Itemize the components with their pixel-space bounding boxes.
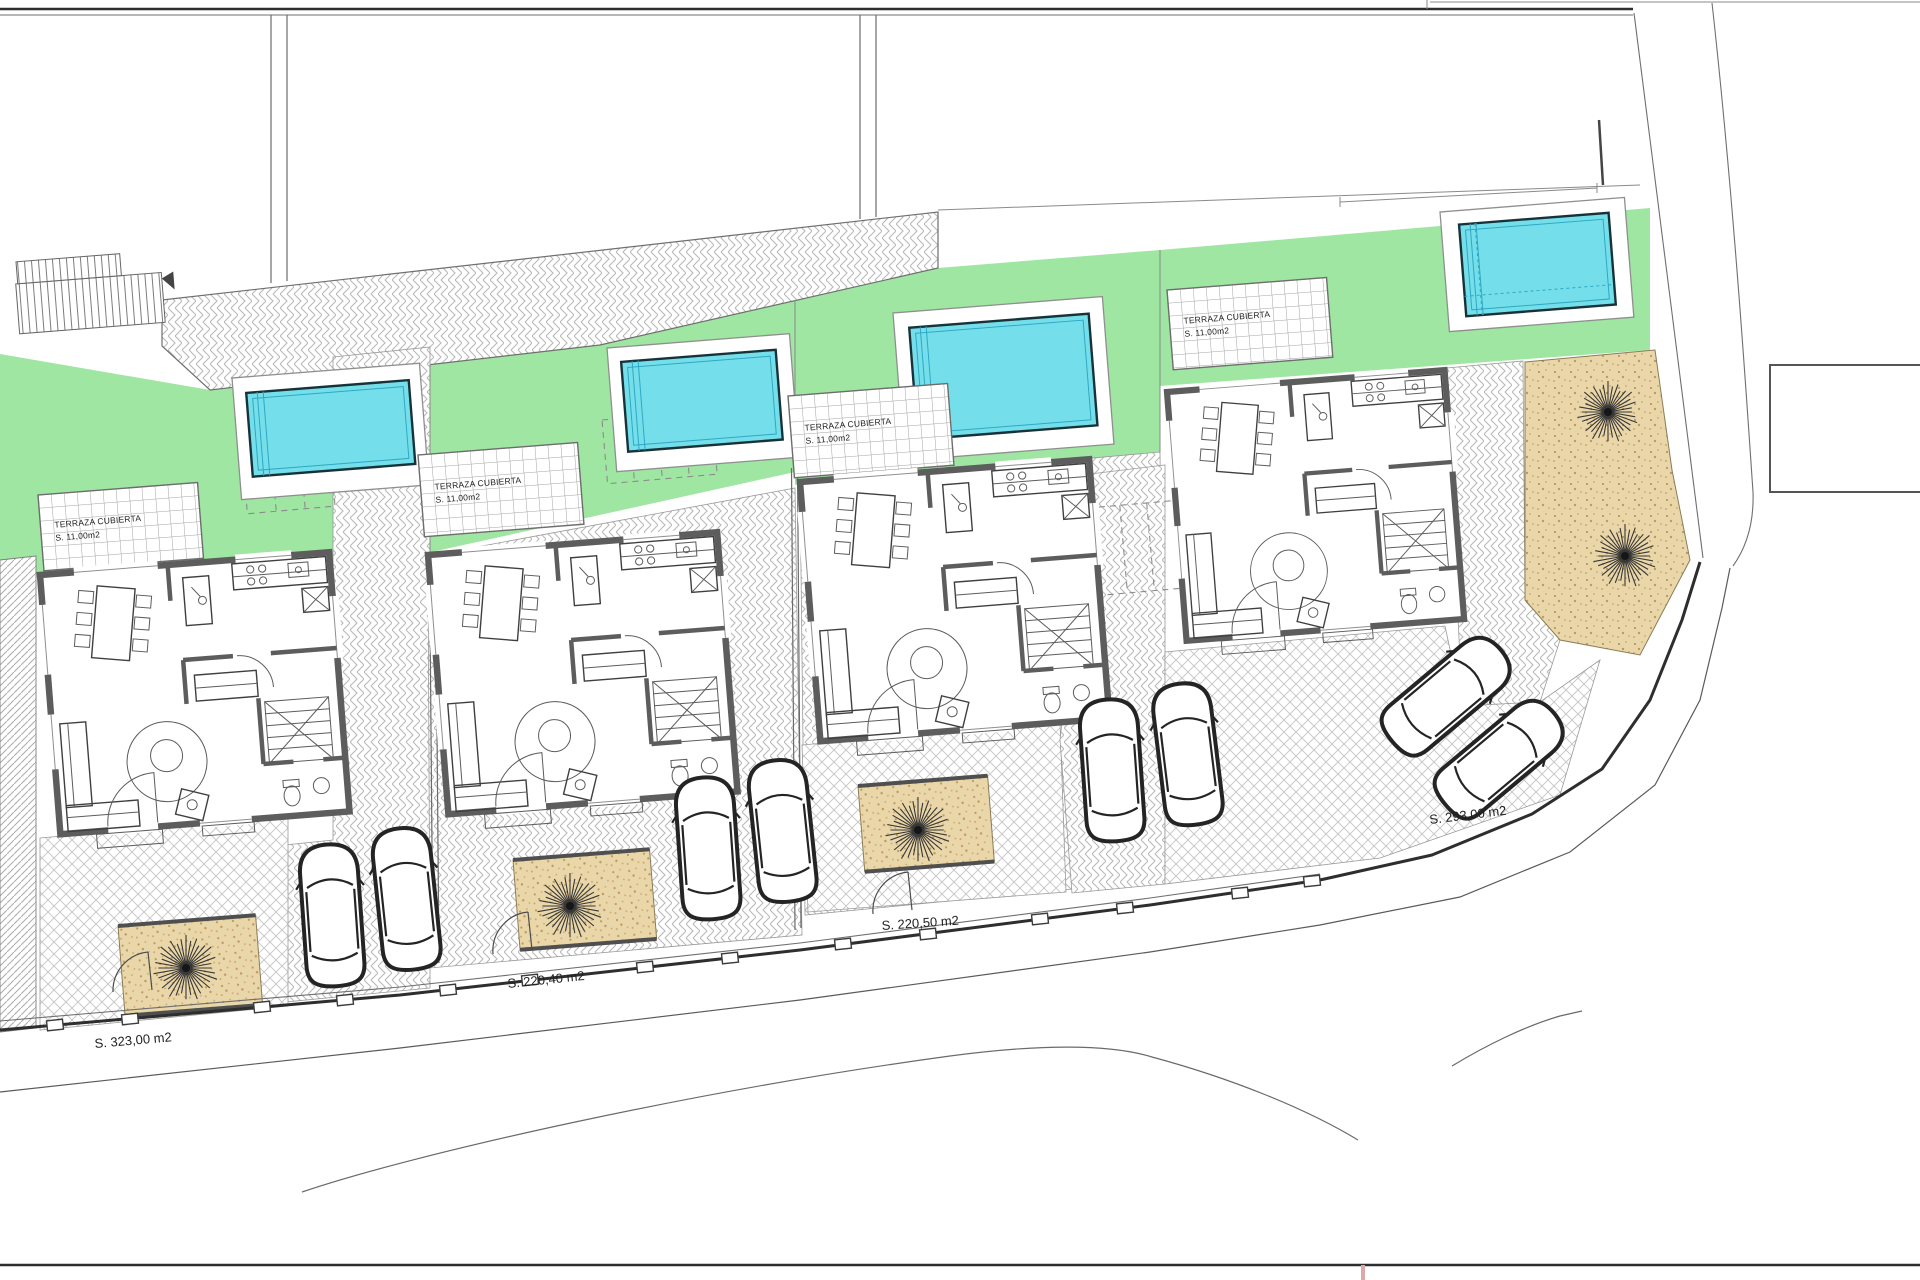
plot-area-label-1: S. 323,00 m2	[94, 1029, 172, 1051]
road-curve-east	[1452, 1011, 1582, 1066]
fence-post	[47, 1019, 64, 1031]
terrace-villa-1: TERRAZA CUBIERTA S. 11,00m2	[38, 482, 203, 570]
fence-post	[1117, 902, 1134, 914]
fence-post	[1304, 875, 1321, 887]
west-boundary-strip	[0, 556, 36, 1032]
fence-post	[440, 984, 457, 996]
plot-area-label-2: S. 220,40 m2	[507, 968, 585, 991]
right-road-outer-edge	[1712, 3, 1753, 566]
plot4-corner-tick	[1599, 120, 1603, 185]
road-curve-west	[302, 1047, 1358, 1192]
terrace-villa-4: TERRAZA CUBIERTA S. 11,00m2	[1167, 277, 1333, 369]
upper-wall-mid	[860, 15, 876, 219]
fence-post	[637, 961, 654, 973]
fence-post	[1232, 887, 1249, 899]
upper-wall-west	[271, 15, 287, 283]
pool-villa-2	[607, 334, 799, 472]
pool-villa-1	[232, 363, 429, 499]
stairs-strip	[14, 250, 177, 334]
site-plan-page: TERRAZA CUBIERTA S. 11,00m2 TERRAZA CUBI…	[0, 0, 1920, 1280]
terrace-villa-3: TERRAZA CUBIERTA S. 11,00m2	[788, 383, 954, 477]
planter-villa-2	[513, 849, 657, 949]
terrace-villa-2: TERRAZA CUBIERTA S. 11,00m2	[418, 442, 584, 536]
fence-post	[1032, 913, 1049, 925]
fence-post	[722, 952, 739, 964]
house-floorplan-villa-3	[795, 454, 1117, 759]
fence-post	[254, 1001, 271, 1013]
pool-villa-4	[1440, 197, 1634, 331]
fence-post	[835, 938, 852, 950]
neighbor-building-outline	[1770, 365, 1920, 492]
fence-post	[122, 1013, 139, 1025]
house-floorplan-villa-1	[35, 547, 357, 852]
fence-post	[337, 994, 354, 1006]
house-floorplan-villa-4	[1162, 365, 1471, 658]
site-plan-canvas: TERRAZA CUBIERTA S. 11,00m2 TERRAZA CUBI…	[0, 0, 1920, 1280]
